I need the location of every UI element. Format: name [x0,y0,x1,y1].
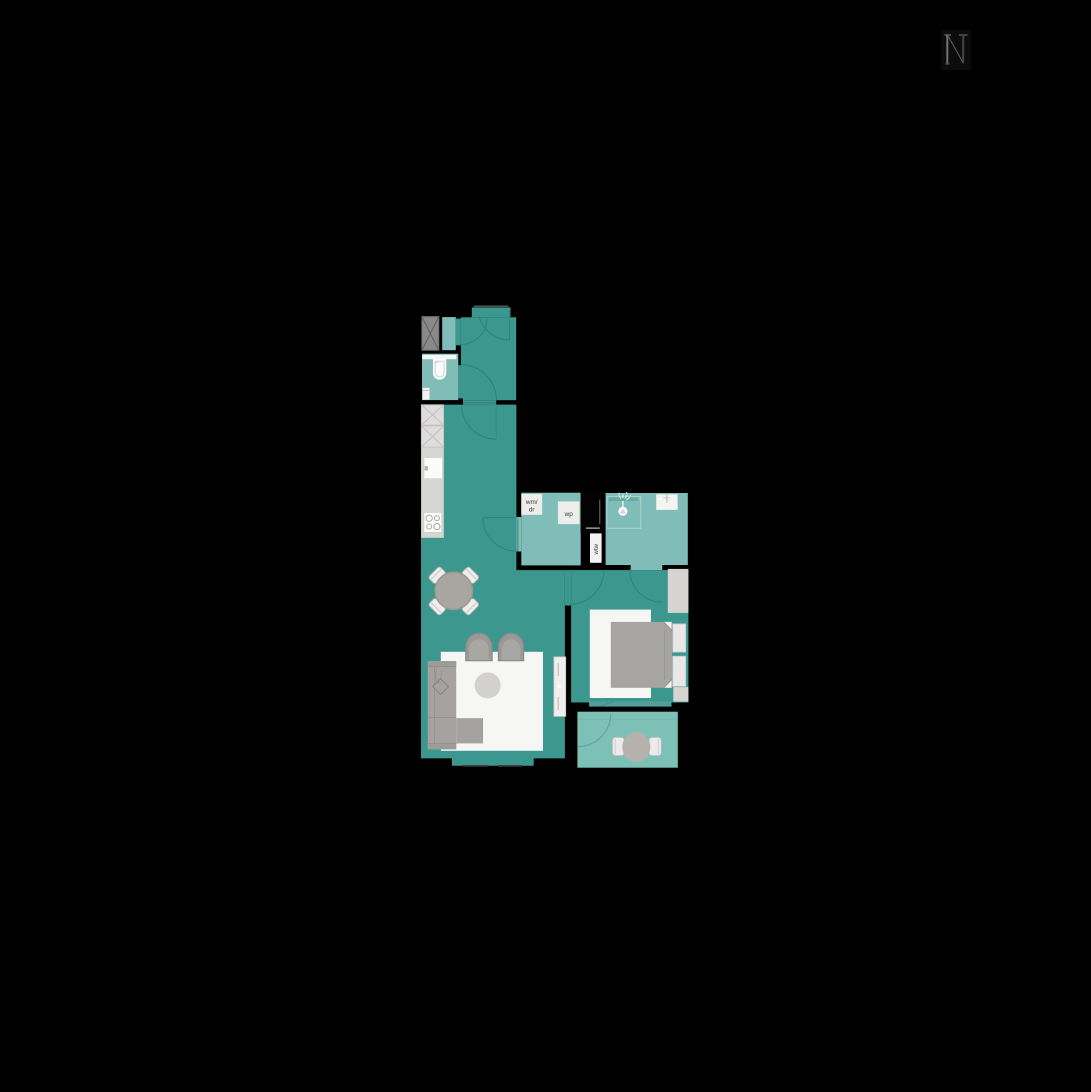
svg-text:wm/: wm/ [525,499,538,506]
svg-text:wp: wp [564,511,574,518]
svg-text:dr: dr [529,506,536,513]
svg-text:wtw: wtw [593,543,600,555]
